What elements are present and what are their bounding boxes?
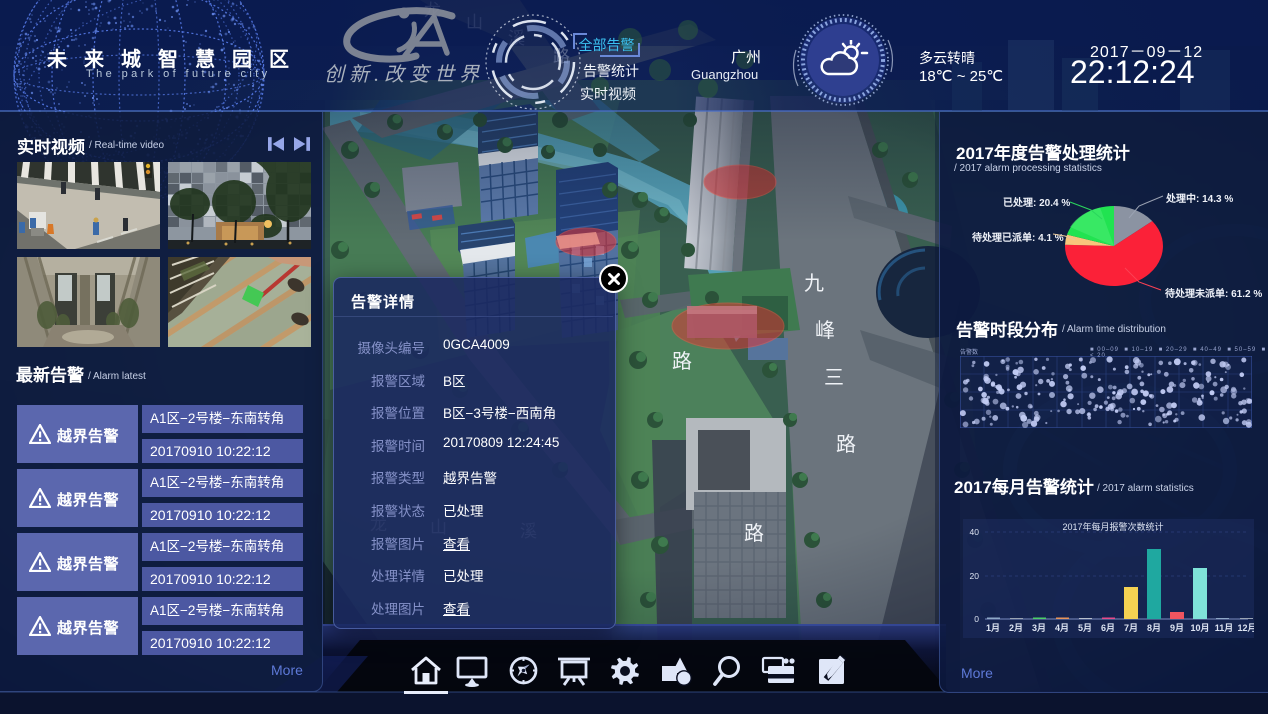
svg-text:40: 40: [970, 527, 980, 537]
svg-text:0: 0: [974, 614, 979, 624]
svg-text:2017年每月报警次数统计: 2017年每月报警次数统计: [1062, 521, 1163, 532]
svg-text:2月: 2月: [1009, 623, 1023, 633]
svg-text:10月: 10月: [1190, 623, 1209, 633]
svg-text:4月: 4月: [1055, 623, 1069, 633]
svg-text:1月: 1月: [986, 623, 1000, 633]
svg-text:6月: 6月: [1101, 623, 1115, 633]
svg-text:20: 20: [970, 571, 980, 581]
svg-text:3月: 3月: [1032, 623, 1046, 633]
svg-text:11月: 11月: [1215, 623, 1234, 633]
svg-text:12月: 12月: [1237, 623, 1254, 633]
svg-text:5月: 5月: [1078, 623, 1092, 633]
svg-text:7月: 7月: [1124, 623, 1138, 633]
svg-text:9月: 9月: [1170, 623, 1184, 633]
svg-text:8月: 8月: [1147, 623, 1161, 633]
